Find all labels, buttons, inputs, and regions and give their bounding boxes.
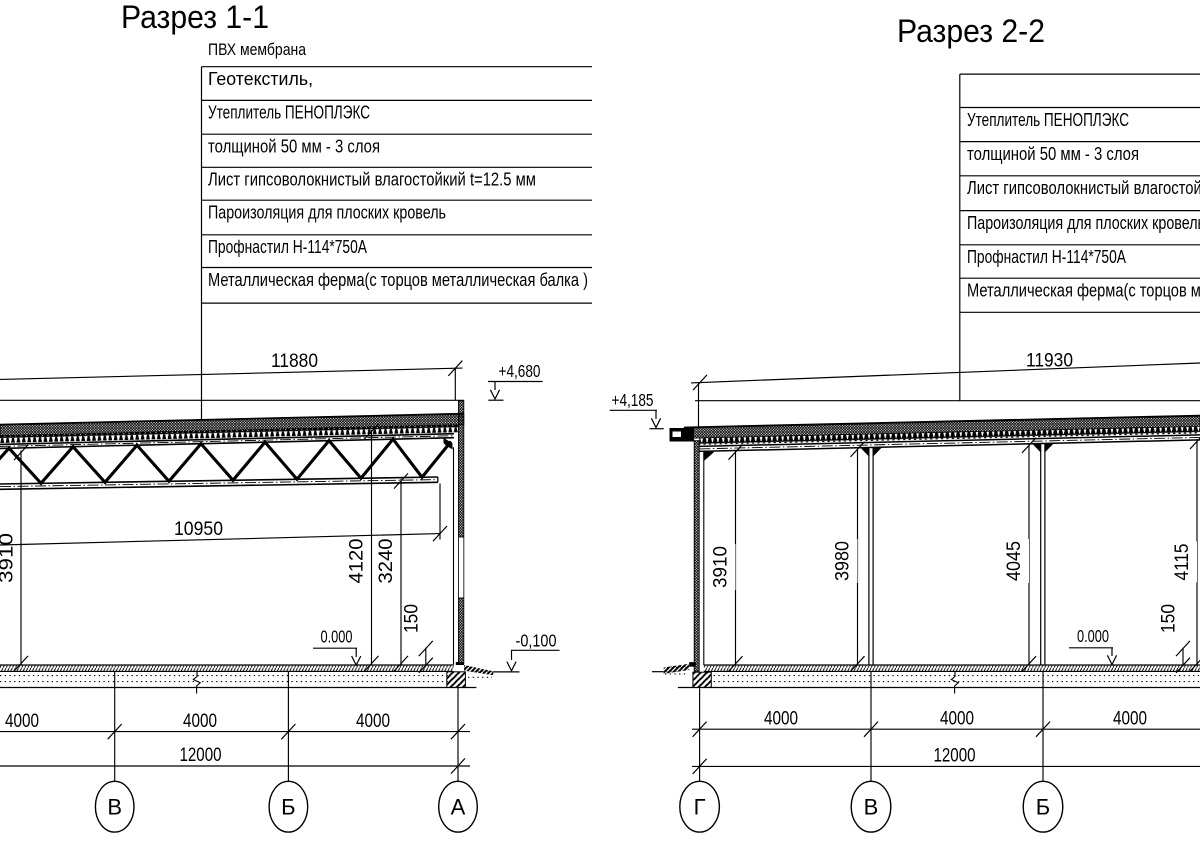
svg-text:-0,100: -0,100 xyxy=(516,630,557,650)
svg-text:Б: Б xyxy=(281,795,295,820)
svg-text:Лист гипсоволокнистый влагосто: Лист гипсоволокнистый влагостойкий t=12.… xyxy=(208,170,536,190)
svg-text:Профнастил Н-114*750А: Профнастил Н-114*750А xyxy=(208,237,367,257)
svg-text:11930: 11930 xyxy=(1026,351,1073,372)
svg-text:0.000: 0.000 xyxy=(1077,626,1109,646)
svg-text:4000: 4000 xyxy=(183,711,217,732)
svg-text:Разрез 2-2: Разрез 2-2 xyxy=(897,13,1045,49)
svg-text:10950: 10950 xyxy=(174,519,223,540)
svg-text:3910: 3910 xyxy=(711,546,732,588)
svg-text:12000: 12000 xyxy=(180,745,222,766)
svg-text:4000: 4000 xyxy=(940,709,974,730)
svg-text:4000: 4000 xyxy=(1113,709,1147,730)
svg-text:3980: 3980 xyxy=(833,541,854,581)
svg-text:4000: 4000 xyxy=(5,711,39,732)
svg-text:150: 150 xyxy=(1159,604,1180,633)
svg-text:А: А xyxy=(451,795,466,820)
svg-text:3240: 3240 xyxy=(376,539,397,584)
svg-text:0.000: 0.000 xyxy=(321,627,353,647)
svg-text:4115: 4115 xyxy=(1172,544,1193,581)
svg-text:11880: 11880 xyxy=(271,351,318,372)
svg-text:3910: 3910 xyxy=(0,533,18,583)
svg-text:Лист гипсоволокнистый влагосто: Лист гипсоволокнистый влагостойкий t=12.… xyxy=(967,178,1200,198)
svg-text:ПВХ мембрана: ПВХ мембрана xyxy=(208,40,306,59)
svg-text:4045: 4045 xyxy=(1004,541,1025,581)
svg-text:150: 150 xyxy=(402,604,423,633)
svg-text:Г: Г xyxy=(694,795,706,820)
svg-text:Пароизоляция для плоских крове: Пароизоляция для плоских кровель xyxy=(967,213,1200,233)
svg-text:+4,680: +4,680 xyxy=(499,361,541,381)
svg-text:Б: Б xyxy=(1036,795,1050,820)
svg-text:4000: 4000 xyxy=(356,711,390,732)
svg-text:толщиной 50 мм - 3 слоя: толщиной 50 мм - 3 слоя xyxy=(208,137,380,157)
svg-text:Утеплитель ПЕНОПЛЭКС: Утеплитель ПЕНОПЛЭКС xyxy=(967,110,1129,130)
svg-text:Утеплитель ПЕНОПЛЭКС: Утеплитель ПЕНОПЛЭКС xyxy=(208,103,370,123)
svg-text:Профнастил Н-114*750А: Профнастил Н-114*750А xyxy=(967,247,1126,267)
svg-text:Геотекстиль,: Геотекстиль, xyxy=(208,69,313,89)
svg-text:Металлическая ферма(с торцов м: Металлическая ферма(с торцов металлическ… xyxy=(208,270,588,290)
svg-text:+4,185: +4,185 xyxy=(612,390,654,410)
svg-text:4000: 4000 xyxy=(764,709,798,730)
svg-text:толщиной 50 мм - 3 слоя: толщиной 50 мм - 3 слоя xyxy=(967,144,1139,164)
svg-text:В: В xyxy=(864,795,879,820)
svg-text:Разрез 1-1: Разрез 1-1 xyxy=(121,0,269,35)
svg-text:Пароизоляция для плоских крове: Пароизоляция для плоских кровель xyxy=(208,203,446,223)
svg-text:12000: 12000 xyxy=(934,745,976,766)
svg-text:В: В xyxy=(107,795,122,820)
svg-text:Металлическая ферма(с торцов м: Металлическая ферма(с торцов металлическ… xyxy=(967,281,1200,301)
svg-text:4120: 4120 xyxy=(347,539,368,584)
